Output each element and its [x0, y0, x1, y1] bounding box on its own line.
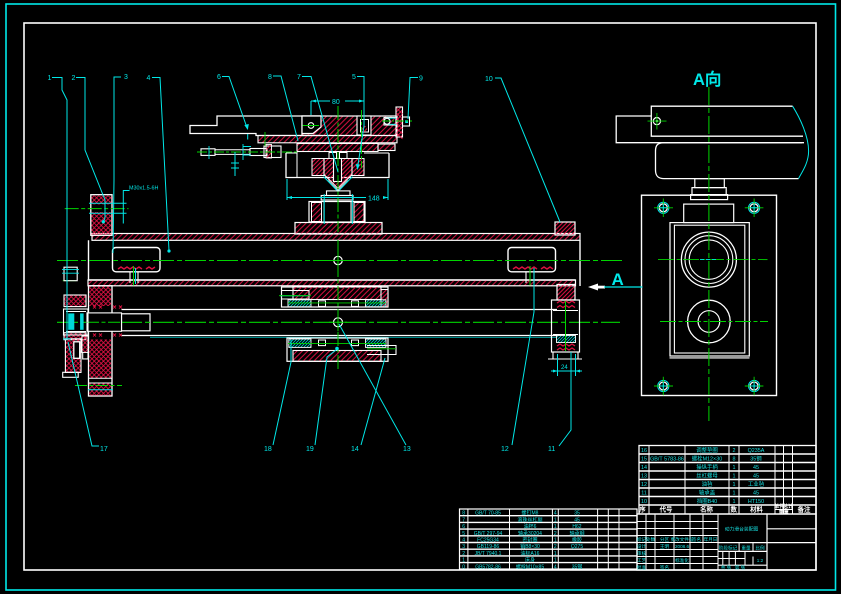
svg-text:9: 9: [419, 76, 423, 83]
svg-text:滚珠丝杠副: 滚珠丝杠副: [517, 516, 542, 523]
svg-text:名称: 名称: [700, 505, 713, 514]
svg-text:1: 1: [554, 524, 557, 530]
svg-text:M30x1.5-6H: M30x1.5-6H: [129, 186, 158, 192]
svg-text:2: 2: [554, 544, 557, 550]
svg-text:1: 1: [733, 499, 736, 505]
svg-text:A: A: [612, 270, 624, 289]
svg-text:油杯6: 油杯6: [524, 523, 537, 530]
svg-text:橡胶: 橡胶: [572, 537, 582, 544]
svg-text:3: 3: [462, 544, 465, 550]
svg-text:5: 5: [352, 74, 356, 81]
svg-text:8: 8: [733, 457, 736, 463]
svg-text:8: 8: [462, 511, 465, 517]
svg-text:12: 12: [641, 482, 647, 488]
svg-text:签名: 签名: [660, 564, 669, 571]
svg-text:7: 7: [462, 517, 465, 523]
svg-text:3: 3: [124, 74, 128, 81]
svg-text:动力滑台装配图: 动力滑台装配图: [725, 526, 759, 533]
svg-text:45: 45: [753, 474, 759, 480]
svg-text:4: 4: [147, 75, 151, 82]
svg-text:审核: 审核: [637, 550, 647, 557]
svg-text:螺栓M12×30: 螺栓M12×30: [692, 455, 722, 463]
svg-text:80: 80: [332, 99, 340, 106]
svg-text:2: 2: [72, 75, 76, 82]
svg-text:1: 1: [733, 474, 736, 480]
svg-text:12: 12: [501, 446, 509, 453]
svg-text:6: 6: [217, 74, 221, 81]
svg-text:4: 4: [554, 511, 557, 517]
svg-text:工艺: 工艺: [637, 558, 647, 563]
svg-text:148: 148: [368, 196, 380, 203]
svg-text:轴承钢: 轴承钢: [569, 530, 584, 537]
svg-text:GB5782-86: GB5782-86: [475, 564, 501, 570]
svg-text:1: 1: [554, 538, 557, 544]
svg-text:4: 4: [462, 538, 465, 544]
svg-text:材料: 材料: [750, 505, 763, 514]
svg-text:13: 13: [403, 446, 411, 453]
svg-text:1: 1: [48, 75, 52, 82]
svg-text:1: 1: [733, 482, 736, 488]
svg-text:19: 19: [306, 446, 314, 453]
svg-text:GB/T 5783-86: GB/T 5783-86: [650, 457, 684, 463]
svg-text:第 张: 第 张: [735, 564, 746, 571]
svg-text:GB/T 297-94: GB/T 297-94: [474, 531, 503, 537]
svg-text:螺栓M10×85: 螺栓M10×85: [516, 563, 544, 570]
svg-text:丝杠螺母: 丝杠螺母: [696, 472, 718, 480]
svg-text:签名: 签名: [692, 536, 701, 543]
svg-text:1: 1: [733, 465, 736, 471]
svg-text:11: 11: [548, 446, 555, 453]
svg-text:备注: 备注: [797, 505, 811, 514]
svg-text:挡圈B40: 挡圈B40: [697, 497, 717, 505]
svg-text:年月日: 年月日: [704, 536, 718, 543]
svg-text:17: 17: [100, 446, 108, 453]
svg-text:HT150: HT150: [748, 499, 764, 505]
svg-text:7: 7: [297, 74, 301, 81]
svg-text:4: 4: [554, 564, 557, 570]
svg-text:1: 1: [554, 551, 557, 557]
svg-text:0: 0: [462, 564, 465, 570]
svg-text:6: 6: [462, 524, 465, 530]
svg-text:A向: A向: [693, 69, 721, 89]
svg-text:序: 序: [639, 505, 646, 514]
svg-text:GB119-86: GB119-86: [477, 544, 500, 550]
svg-text:2: 2: [462, 551, 465, 557]
svg-text:床身: 床身: [525, 557, 535, 564]
svg-text:共 张: 共 张: [721, 564, 732, 571]
svg-text:45: 45: [753, 491, 759, 497]
svg-text:Q275: Q275: [571, 544, 583, 550]
svg-text:操纵手柄: 操纵手柄: [696, 463, 718, 471]
svg-text:1: 1: [554, 517, 557, 523]
svg-text:14: 14: [351, 446, 359, 453]
svg-text:8: 8: [268, 74, 272, 81]
svg-text:1:2: 1:2: [757, 558, 764, 563]
svg-text:更改文件号: 更改文件号: [671, 536, 694, 543]
svg-text:10: 10: [485, 76, 493, 83]
svg-text:45: 45: [753, 465, 759, 471]
svg-text:阶段标记: 阶段标记: [719, 545, 738, 552]
svg-text:轴承30204: 轴承30204: [518, 530, 542, 537]
svg-text:2: 2: [733, 448, 736, 454]
svg-text:分区: 分区: [660, 536, 670, 543]
svg-text:设计: 设计: [637, 543, 647, 550]
svg-text:11: 11: [641, 491, 647, 497]
svg-text:35钢: 35钢: [572, 563, 583, 570]
svg-text:1: 1: [733, 491, 736, 497]
svg-text:GB/T 70-85: GB/T 70-85: [475, 511, 501, 517]
svg-text:JB/T 7940.1: JB/T 7940.1: [475, 551, 502, 557]
svg-text:密封圈: 密封圈: [522, 537, 537, 544]
svg-text:数: 数: [731, 505, 738, 514]
svg-text:5: 5: [462, 531, 465, 537]
svg-text:24: 24: [561, 365, 568, 371]
svg-text:2: 2: [554, 531, 557, 537]
svg-text:35钢: 35钢: [750, 455, 761, 463]
svg-text:比例: 比例: [755, 545, 765, 552]
svg-text:油标A16: 油标A16: [521, 550, 540, 557]
svg-text:16: 16: [641, 448, 647, 454]
svg-text:13: 13: [641, 474, 647, 480]
svg-text:调整垫圈: 调整垫圈: [696, 446, 718, 454]
svg-text:螺钉M8: 螺钉M8: [522, 510, 539, 517]
svg-text:批准: 批准: [637, 564, 647, 571]
svg-text:10: 10: [641, 499, 647, 505]
svg-text:FC25G34: FC25G34: [477, 538, 499, 544]
svg-text:1: 1: [462, 558, 465, 564]
svg-text:35: 35: [574, 511, 580, 517]
svg-text:重量: 重量: [741, 545, 751, 552]
svg-text:Q235A: Q235A: [748, 448, 765, 454]
svg-text:45: 45: [574, 517, 580, 523]
svg-text:代号: 代号: [659, 505, 673, 514]
svg-text:15: 15: [641, 457, 647, 463]
svg-text:H62: H62: [572, 524, 581, 530]
svg-text:标准化: 标准化: [675, 557, 689, 564]
svg-text:1: 1: [554, 558, 557, 564]
svg-text:处数: 处数: [646, 536, 656, 543]
svg-text:14: 14: [641, 465, 647, 471]
svg-text:18: 18: [264, 446, 272, 453]
svg-text:工业毡: 工业毡: [748, 480, 765, 488]
svg-text:油毡: 油毡: [702, 480, 713, 488]
svg-text:轴承盖: 轴承盖: [699, 489, 716, 497]
svg-text:2008.6: 2008.6: [675, 544, 689, 549]
svg-text:销B8×30: 销B8×30: [520, 543, 540, 550]
